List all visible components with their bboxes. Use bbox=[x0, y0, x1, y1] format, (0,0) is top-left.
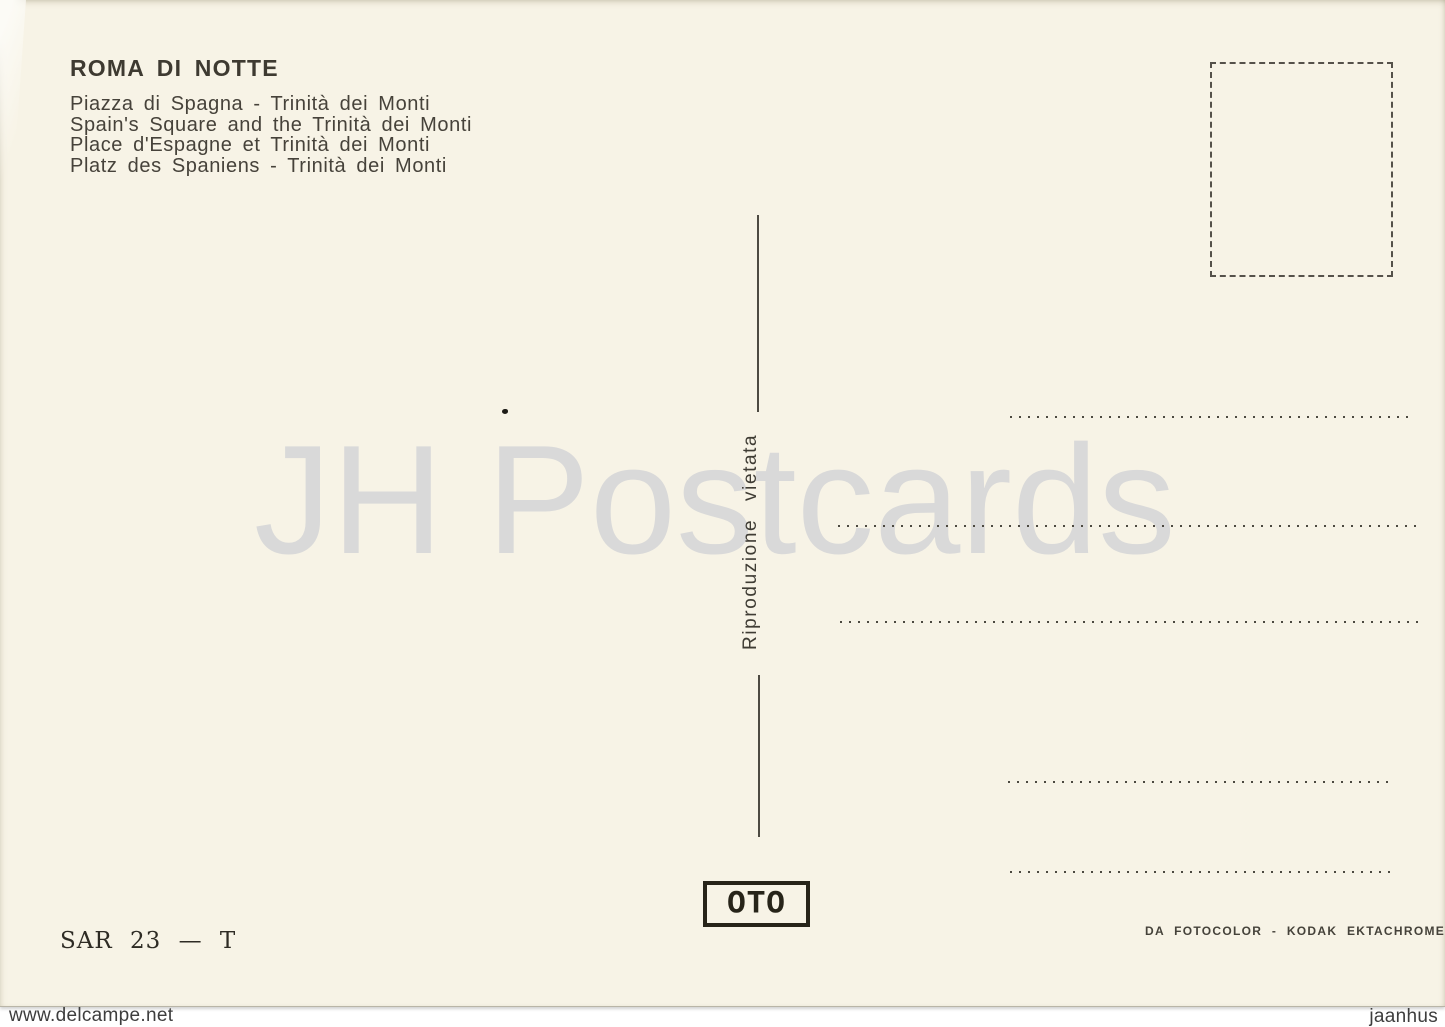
publisher-logo-box: OTO bbox=[703, 881, 810, 927]
stamp-box bbox=[1210, 62, 1393, 277]
divider-line-bottom bbox=[758, 675, 760, 837]
address-line-4 bbox=[1008, 781, 1392, 783]
address-line-5 bbox=[1010, 871, 1390, 873]
address-line-1 bbox=[1010, 416, 1412, 418]
postcard-back: JH Postcards ROMA DI NOTTE Piazza di Spa… bbox=[0, 0, 1445, 1007]
publisher-logo-text: OTO bbox=[727, 886, 786, 923]
caption-french: Place d'Espagne et Trinità dei Monti bbox=[70, 135, 472, 156]
caption-german: Platz des Spaniens - Trinità dei Monti bbox=[70, 156, 472, 177]
title-block: ROMA DI NOTTE Piazza di Spagna - Trinità… bbox=[70, 55, 472, 176]
corner-crease bbox=[0, 0, 27, 181]
film-credit: DA FOTOCOLOR - KODAK EKTACHROME bbox=[1145, 924, 1445, 938]
serial-number: SAR 23 — T bbox=[60, 928, 236, 954]
reproduction-notice: Riproduzione vietata bbox=[740, 438, 762, 650]
caption-english: Spain's Square and the Trinità dei Monti bbox=[70, 115, 472, 136]
card-title: ROMA DI NOTTE bbox=[70, 55, 472, 82]
ink-speck bbox=[502, 409, 508, 414]
divider-line-top bbox=[757, 215, 759, 412]
caption-italian: Piazza di Spagna - Trinità dei Monti bbox=[70, 94, 472, 115]
watermark-center: JH Postcards bbox=[254, 422, 1176, 577]
address-line-2 bbox=[838, 525, 1418, 527]
address-line-3 bbox=[840, 621, 1418, 623]
watermark-bottom-left: www.delcampe.net bbox=[9, 1005, 173, 1027]
watermark-bottom-right: jaanhus bbox=[1369, 1006, 1438, 1027]
postcard-scan: JH Postcards ROMA DI NOTTE Piazza di Spa… bbox=[0, 0, 1445, 1027]
